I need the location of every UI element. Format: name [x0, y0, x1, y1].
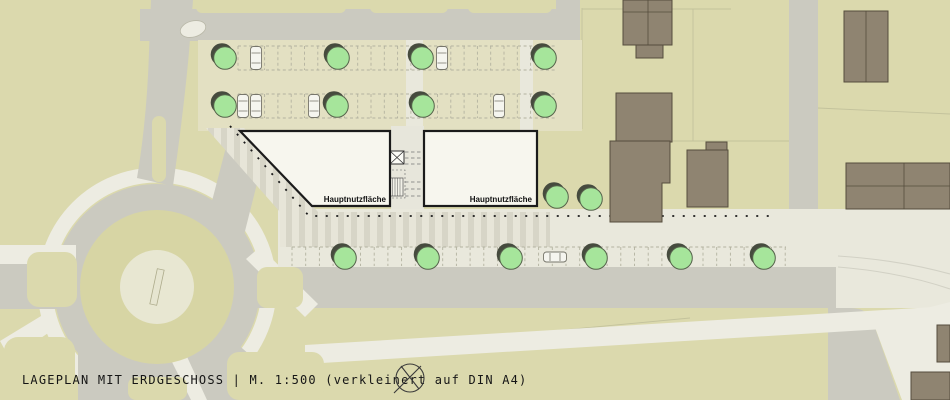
parked-car-icon	[494, 95, 505, 118]
tree-icon	[411, 47, 434, 70]
tree-icon	[585, 247, 608, 270]
tree-icon	[214, 95, 237, 118]
tree-icon	[534, 47, 557, 70]
parked-car-icon	[437, 47, 448, 70]
tree-icon	[417, 247, 440, 270]
existing-building	[610, 141, 670, 222]
tree-icon	[670, 247, 693, 270]
top-road-north-turn	[556, 0, 580, 12]
tree-icon	[534, 95, 557, 118]
building-corridor	[388, 126, 424, 209]
east-intersection-area	[836, 209, 950, 308]
existing-building	[911, 372, 950, 400]
existing-building	[937, 325, 950, 362]
site-plan-page: Hauptnutzfläche Hauptnutzfläche LAGEPLAN…	[0, 0, 950, 400]
corridor-ground	[391, 126, 424, 209]
tree-icon	[753, 247, 776, 270]
roundabout-center	[80, 210, 234, 364]
parked-car-icon	[238, 95, 249, 118]
building-label-right: Hauptnutzfläche	[470, 195, 533, 204]
plan-title: LAGEPLAN MIT ERDGESCHOSS | M. 1:500 (ver…	[22, 373, 527, 387]
existing-building	[623, 0, 672, 45]
tree-icon	[500, 247, 523, 270]
building-label-left: Hauptnutzfläche	[324, 195, 387, 204]
existing-building	[687, 150, 728, 207]
parked-car-icon	[251, 95, 262, 118]
site-plan-svg: Hauptnutzfläche Hauptnutzfläche LAGEPLAN…	[0, 0, 950, 400]
top-road-islands	[196, 0, 552, 13]
striped-plaza-band	[280, 212, 550, 247]
existing-building	[636, 45, 663, 58]
tree-icon	[326, 95, 349, 118]
tree-icon	[327, 47, 350, 70]
existing-building	[616, 93, 672, 142]
top-road	[140, 9, 580, 41]
tree-icon	[334, 247, 357, 270]
parked-car-icon	[544, 252, 567, 262]
tree-icon	[214, 47, 237, 70]
parked-car-icon	[251, 47, 262, 70]
tree-icon	[580, 188, 603, 211]
main-road	[250, 266, 838, 308]
tree-icon	[412, 95, 435, 118]
parked-car-icon	[309, 95, 320, 118]
stairs-icon	[390, 178, 403, 196]
tree-icon	[546, 186, 569, 209]
